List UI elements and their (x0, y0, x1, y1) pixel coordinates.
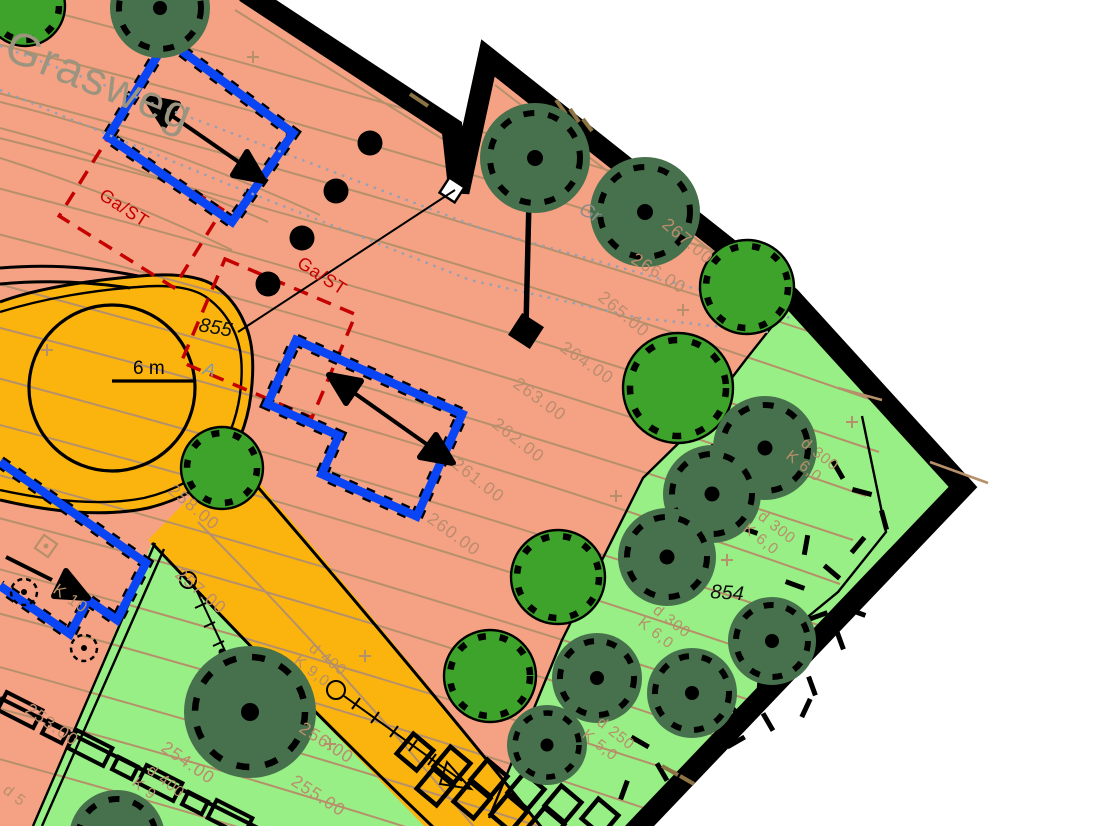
tree-icon (728, 597, 816, 685)
tree-icon (444, 630, 536, 722)
tree-icon (623, 333, 733, 443)
tree-icon (507, 705, 587, 785)
tree-icon (590, 157, 700, 267)
tree-icon (552, 633, 642, 723)
tree-icon (618, 508, 716, 606)
tree-icon (511, 530, 605, 624)
tree-icon (480, 103, 590, 213)
radius-label: 6 m (133, 358, 165, 379)
site-plan-map: Grasweg Gr Ga/ST Ga/ST 855 854 A 6 m K 1… (0, 0, 1101, 826)
tree-icon (647, 648, 737, 738)
parcel-number-854: 854 (710, 581, 745, 605)
